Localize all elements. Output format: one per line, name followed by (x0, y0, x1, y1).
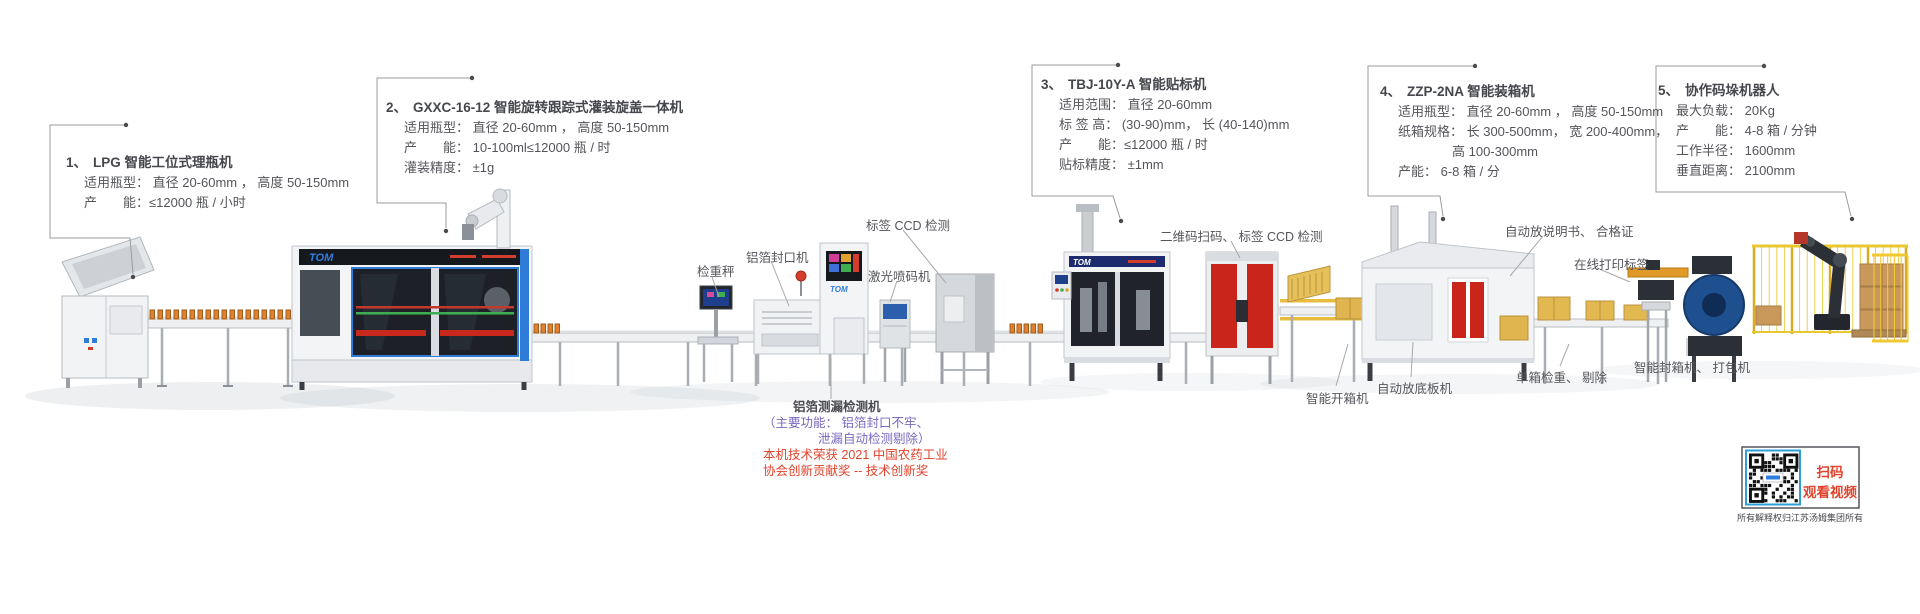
spec-block-3: 3、TBJ-10Y-A 智能贴标机 适用范围： 直径 20-60mm 标 签 高… (1041, 75, 1289, 175)
spec-line: 产 能： 10-100ml≤12000 瓶 / 时 (404, 138, 683, 158)
label-foil-sealer: 铝箔封口机 (746, 247, 809, 266)
carton-stack (1860, 264, 1903, 332)
label-bottom-pad: 自动放底板机 (1377, 378, 1452, 397)
machine-filling-capping: TOM (292, 246, 532, 390)
filler-logo: TOM (309, 252, 334, 264)
leak-note-function-2: 泄漏自动检测剔除） (818, 431, 948, 447)
machine-labeler: TOM (1052, 204, 1170, 381)
spec-line: 适用范围： 直径 20-60mm (1059, 95, 1289, 115)
spec-title: 4、ZZP-2NA 智能装箱机 (1380, 82, 1668, 102)
spec-line: 灌装精度： ±1g (404, 158, 683, 178)
spec-line: 标 签 高： (30-90)mm， 长 (40-140)mm (1059, 115, 1289, 135)
leak-detector-note: 铝箔测漏检测机 （主要功能： 铝箔封口不牢、 泄漏自动检测剔除） 本机技术荣获 … (763, 399, 948, 479)
sealer-logo: TOM (830, 285, 848, 294)
qr-scan-line1: 扫码 (1802, 463, 1858, 483)
leak-note-award-1: 本机技术荣获 2021 中国农药工业 (763, 447, 948, 463)
outfeed-cartons (1538, 297, 1649, 320)
leak-note-award-2: 协会创新贡献奖 -- 技术创新奖 (763, 463, 948, 479)
spec-block-1: 1、LPG 智能工位式理瓶机 适用瓶型： 直径 20-60mm ， 高度 50-… (66, 153, 349, 213)
machine-laser-coder (880, 300, 910, 382)
spec-line: 产 能：≤12000 瓶 / 小时 (84, 193, 349, 213)
label-case-checkweigher: 单箱检重、 剔除 (1516, 367, 1607, 386)
robot-palletizer-cell (1752, 232, 1908, 342)
conveyor-infeed (142, 317, 296, 387)
spec-title: 2、GXXC-16-12 智能旋转跟踪式灌装旋盖一体机 (386, 98, 683, 118)
spec-line: 适用瓶型： 直径 20-60mm ， 高度 50-150mm (84, 173, 349, 193)
spec-line: 适用瓶型： 直径 20-60mm ， 高度 50-150mm (404, 118, 683, 138)
label-manual-inserter: 自动放说明书、 合格证 (1505, 221, 1633, 240)
spec-block-5: 5、协作码垛机器人 最大负载： 20Kg 产 能： 4-8 箱 / 分钟 工作半… (1658, 81, 1817, 181)
machine-qr-ccd-cabinet (1206, 252, 1278, 384)
spec-line: 贴标精度： ±1mm (1059, 155, 1289, 175)
label-checkweigher: 检重秤 (697, 261, 735, 280)
label-laser-coder: 激光喷码机 (868, 266, 931, 285)
spec-title: 1、LPG 智能工位式理瓶机 (66, 153, 349, 173)
spec-line: 产 能：≤12000 瓶 / 时 (1059, 135, 1289, 155)
spec-line: 产能： 6-8 箱 / 分 (1398, 162, 1668, 182)
spec-title: 3、TBJ-10Y-A 智能贴标机 (1041, 75, 1289, 95)
machine-bottle-unscrambler (62, 237, 154, 388)
spec-line: 产 能： 4-8 箱 / 分钟 (1676, 121, 1817, 141)
spec-line: 纸箱规格： 长 300-500mm， 宽 200-400mm， (1398, 122, 1668, 142)
label-qr-ccd: 二维码扫码、 标签 CCD 检测 (1160, 226, 1323, 245)
machine-leak-detector (834, 318, 864, 354)
label-case-sealer: 智能封箱机、 打包机 (1634, 357, 1750, 376)
labeler-logo: TOM (1073, 258, 1091, 267)
spec-line: 高 100-300mm (1452, 142, 1668, 162)
label-case-opener: 智能开箱机 (1306, 388, 1369, 407)
leak-detector-title: 铝箔测漏检测机 (793, 399, 948, 415)
spec-line: 适用瓶型： 直径 20-60mm ， 高度 50-150mm (1398, 102, 1668, 122)
leak-note-function-1: （主要功能： 铝箔封口不牢、 (763, 415, 948, 431)
spec-block-2: 2、GXXC-16-12 智能旋转跟踪式灌装旋盖一体机 适用瓶型： 直径 20-… (386, 98, 683, 178)
spec-line: 最大负载： 20Kg (1676, 101, 1817, 121)
spec-line: 垂直距离： 2100mm (1676, 161, 1817, 181)
label-online-printer: 在线打印标签 (1574, 254, 1649, 273)
robot-cap-feeder (462, 189, 510, 248)
production-line-diagram: TOM (0, 0, 1920, 614)
spec-title: 5、协作码垛机器人 (1658, 81, 1817, 101)
qr-scan-text: 扫码 观看视频 (1802, 463, 1858, 503)
spec-line: 工作半径： 1600mm (1676, 141, 1817, 161)
spec-block-4: 4、ZZP-2NA 智能装箱机 适用瓶型： 直径 20-60mm ， 高度 50… (1380, 82, 1668, 182)
label-label-ccd: 标签 CCD 检测 (866, 215, 950, 234)
copyright-caption: 所有解释权归江苏汤姆集团所有 (1736, 511, 1864, 524)
qr-scan-line2: 观看视频 (1802, 483, 1858, 503)
